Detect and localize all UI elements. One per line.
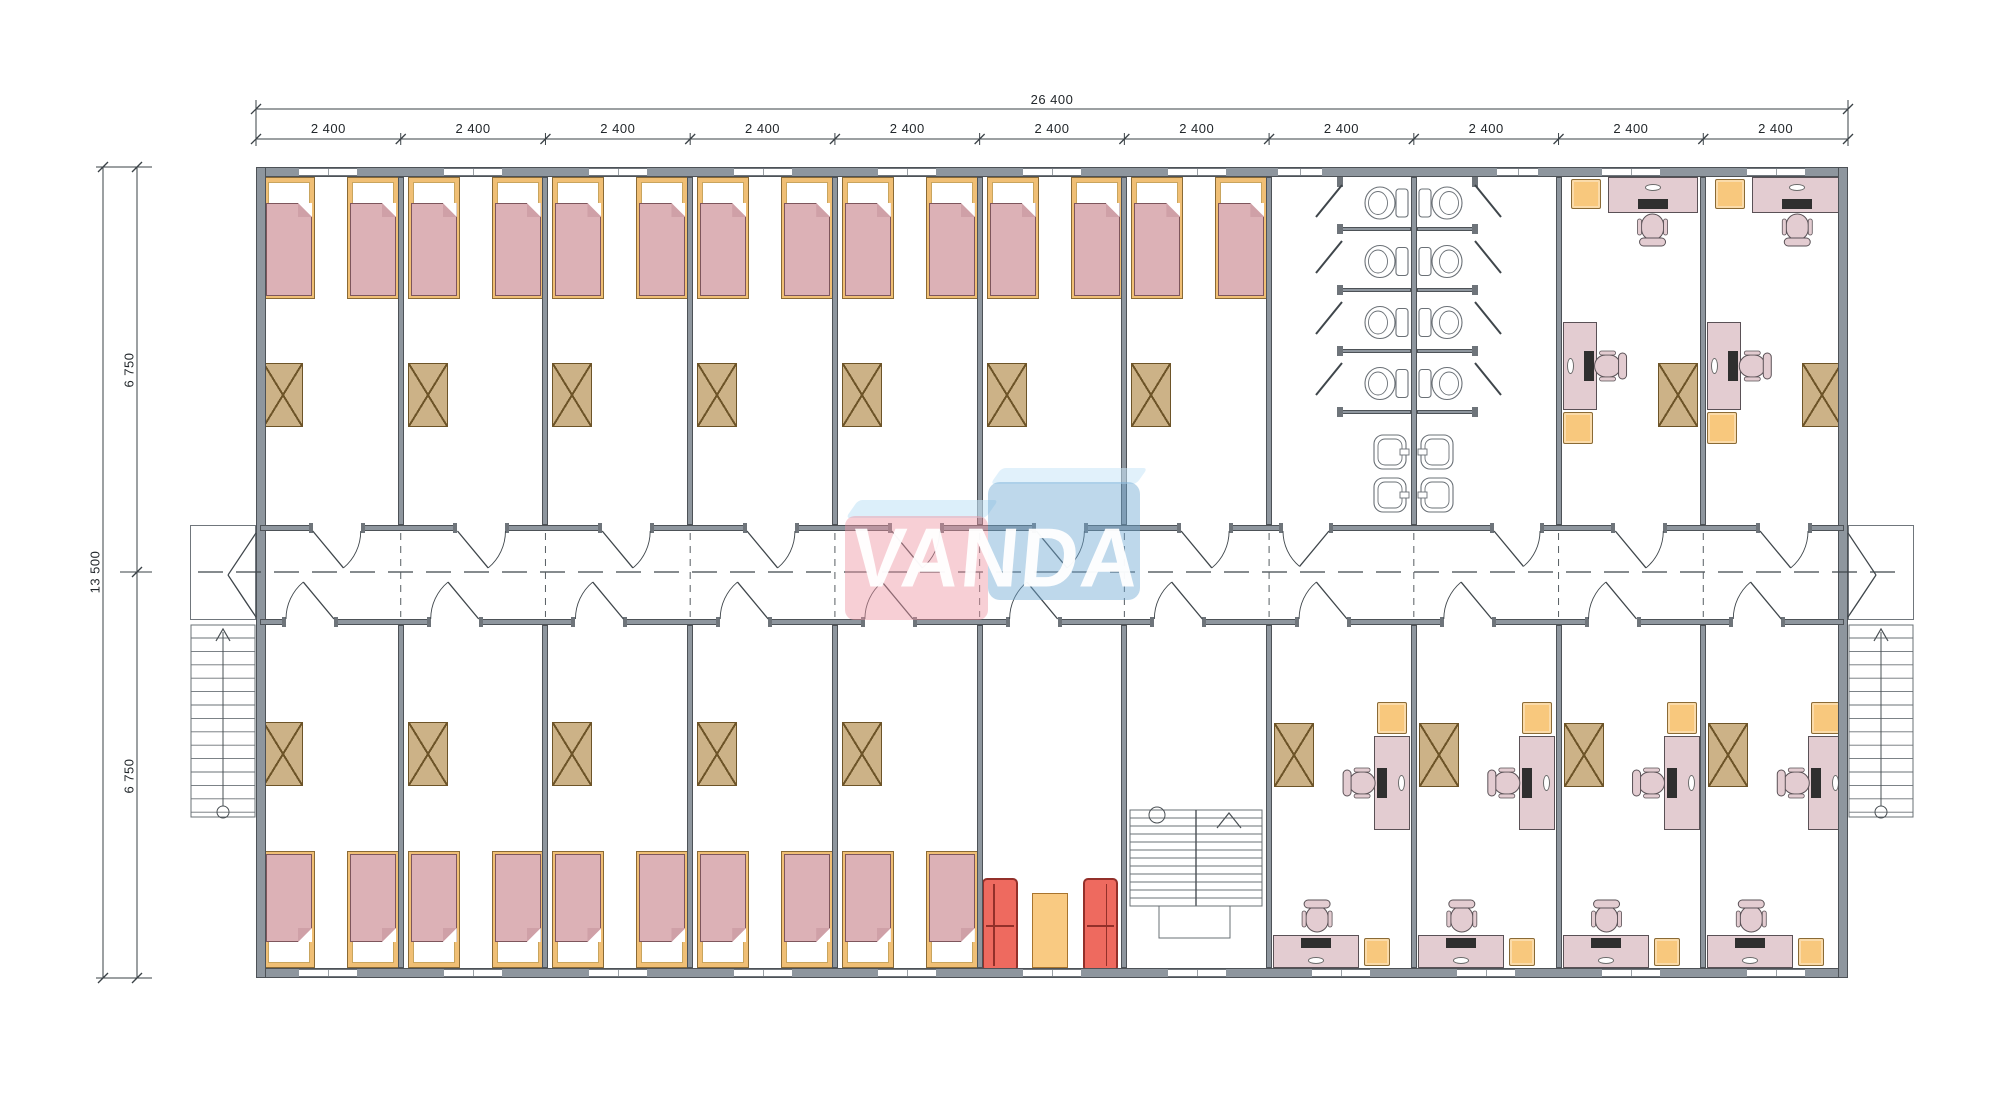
- door-swing-arc: [1283, 531, 1300, 566]
- door-swing-arc: [865, 582, 882, 619]
- chair-arm: [1744, 351, 1760, 355]
- door-leaf: [747, 531, 778, 568]
- door-swing-arc: [1646, 531, 1663, 568]
- stall-door: [1316, 241, 1342, 273]
- chair-arm: [1788, 768, 1804, 772]
- chair-seat: [1786, 214, 1808, 240]
- sink-tap: [1400, 449, 1409, 455]
- door-swing-arc: [1067, 531, 1084, 568]
- door-leaf: [448, 582, 479, 619]
- chair-arm: [1644, 768, 1660, 772]
- chair-arm: [1354, 794, 1370, 798]
- door-leaf: [1316, 582, 1347, 619]
- doors-and-fixtures: [0, 0, 2000, 1099]
- chair-arm: [1447, 911, 1451, 927]
- chair-seat: [1783, 772, 1809, 794]
- chair-arm: [1618, 911, 1622, 927]
- end-door-leaf: [228, 533, 256, 575]
- chair-back: [1777, 770, 1785, 796]
- chair: [1592, 900, 1622, 932]
- chair-arm: [1744, 377, 1760, 381]
- door-swing-arc: [343, 531, 360, 568]
- chair-arm: [1762, 911, 1766, 927]
- chair: [1782, 214, 1812, 246]
- chair-back: [1304, 900, 1330, 908]
- chair-arm: [1788, 794, 1804, 798]
- door-swing-arc: [1444, 582, 1461, 619]
- door-leaf: [1036, 531, 1067, 568]
- stair-landing: [1159, 906, 1230, 938]
- stall-door: [1475, 363, 1501, 395]
- door-swing-arc: [488, 531, 505, 568]
- chair: [1488, 768, 1520, 798]
- stall-door: [1475, 241, 1501, 273]
- chair-arm: [1644, 794, 1660, 798]
- chair-back: [1343, 770, 1351, 796]
- toilet-tank: [1419, 248, 1431, 276]
- chair-back: [1488, 770, 1496, 796]
- door-leaf: [1606, 582, 1637, 619]
- chair-back: [1449, 900, 1475, 908]
- toilet-tank: [1419, 309, 1431, 337]
- end-door-leaf: [1848, 533, 1876, 575]
- chair-back: [1594, 900, 1620, 908]
- stall-door: [1316, 185, 1342, 217]
- toilet-tank: [1396, 248, 1408, 276]
- chair-arm: [1354, 768, 1370, 772]
- end-door-arc: [1848, 575, 1876, 617]
- chair-arm: [1782, 219, 1786, 235]
- end-door-arc: [228, 575, 256, 617]
- stall-door: [1316, 363, 1342, 395]
- chair-arm: [1600, 351, 1616, 355]
- sink-tap: [1400, 492, 1409, 498]
- door-swing-arc: [1523, 531, 1540, 566]
- chair-seat: [1595, 355, 1621, 377]
- chair-seat: [1739, 355, 1765, 377]
- chair-back: [1619, 353, 1627, 379]
- door-leaf: [1300, 531, 1329, 566]
- stall-door: [1316, 302, 1342, 334]
- door-swing-arc: [1299, 582, 1316, 619]
- chair: [1302, 900, 1332, 932]
- door-swing-arc: [431, 582, 448, 619]
- chair-arm: [1592, 911, 1596, 927]
- stall-door: [1475, 185, 1501, 217]
- door-leaf: [1172, 582, 1203, 619]
- door-swing-arc: [1154, 582, 1171, 619]
- door-swing-arc: [1791, 531, 1808, 568]
- door-leaf: [593, 582, 624, 619]
- door-leaf: [1494, 531, 1523, 566]
- door-leaf: [457, 531, 488, 568]
- chair: [1736, 900, 1766, 932]
- door-swing-arc: [1733, 582, 1750, 619]
- door-swing-arc: [1212, 531, 1229, 568]
- stall-door: [1475, 302, 1501, 334]
- toilet-tank: [1419, 370, 1431, 398]
- chair-seat: [1494, 772, 1520, 794]
- sink-tap: [1418, 492, 1427, 498]
- door-swing-arc: [575, 582, 592, 619]
- toilet-tank: [1419, 189, 1431, 217]
- chair-arm: [1638, 219, 1642, 235]
- chair-arm: [1302, 911, 1306, 927]
- door-leaf: [892, 531, 923, 568]
- door-leaf: [1027, 582, 1058, 619]
- chair-arm: [1473, 911, 1477, 927]
- chair-back: [1640, 238, 1666, 246]
- chair: [1343, 768, 1375, 798]
- door-leaf: [882, 582, 913, 619]
- chair-seat: [1306, 906, 1328, 932]
- door-leaf: [1181, 531, 1212, 568]
- door-swing-arc: [633, 531, 650, 568]
- chair-arm: [1499, 768, 1515, 772]
- chair-seat: [1596, 906, 1618, 932]
- door-leaf: [1751, 582, 1782, 619]
- chair: [1638, 214, 1668, 246]
- door-swing-arc: [1010, 582, 1027, 619]
- chair-seat: [1349, 772, 1375, 794]
- door-leaf: [1760, 531, 1791, 568]
- toilet-tank: [1396, 189, 1408, 217]
- chair: [1447, 900, 1477, 932]
- sink-tap: [1418, 449, 1427, 455]
- floor-plan: VANDA 26 4002 4002 4002 4002 4002 4002 4…: [0, 0, 2000, 1099]
- chair: [1595, 351, 1627, 381]
- door-leaf: [1615, 531, 1646, 568]
- chair-arm: [1664, 219, 1668, 235]
- chair: [1739, 351, 1771, 381]
- chair-back: [1738, 900, 1764, 908]
- chair-arm: [1736, 911, 1740, 927]
- door-swing-arc: [1589, 582, 1606, 619]
- door-swing-arc: [922, 531, 939, 568]
- chair-arm: [1808, 219, 1812, 235]
- door-leaf: [1461, 582, 1492, 619]
- chair-arm: [1328, 911, 1332, 927]
- toilet-tank: [1396, 309, 1408, 337]
- door-leaf: [737, 582, 768, 619]
- chair-seat: [1740, 906, 1762, 932]
- door-swing-arc: [286, 582, 303, 619]
- door-swing-arc: [720, 582, 737, 619]
- door-leaf: [303, 582, 334, 619]
- chair-seat: [1451, 906, 1473, 932]
- door-swing-arc: [778, 531, 795, 568]
- chair-back: [1784, 238, 1810, 246]
- chair-seat: [1639, 772, 1665, 794]
- stair-newel-circle: [1149, 807, 1165, 823]
- chair-arm: [1600, 377, 1616, 381]
- chair-back: [1633, 770, 1641, 796]
- chair: [1633, 768, 1665, 798]
- chair-seat: [1642, 214, 1664, 240]
- toilet-tank: [1396, 370, 1408, 398]
- door-leaf: [602, 531, 633, 568]
- door-leaf: [313, 531, 344, 568]
- chair: [1777, 768, 1809, 798]
- chair-arm: [1499, 794, 1515, 798]
- chair-back: [1763, 353, 1771, 379]
